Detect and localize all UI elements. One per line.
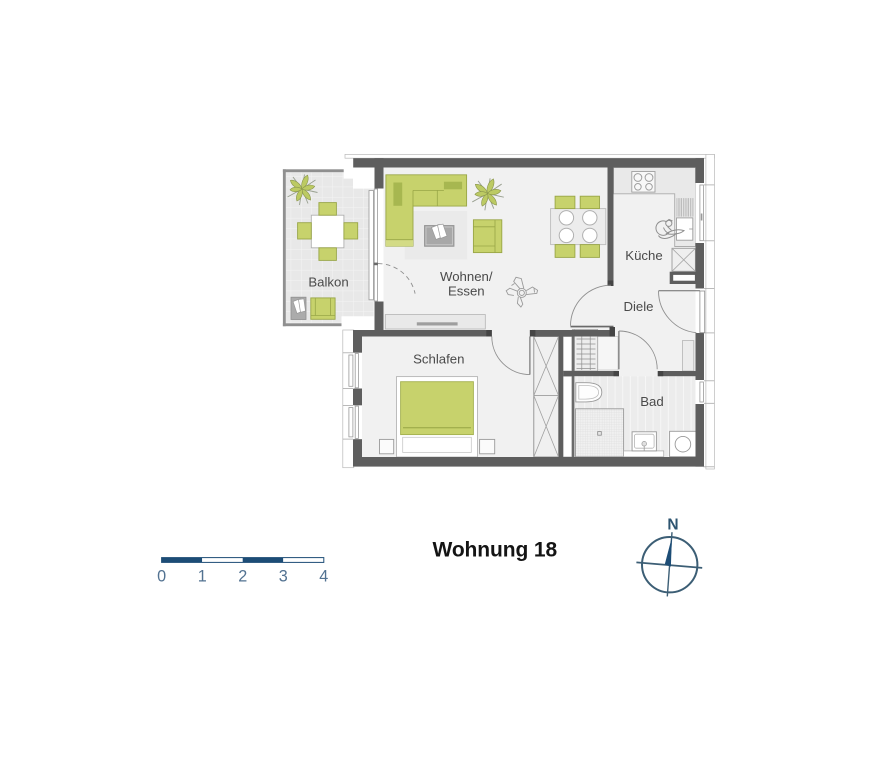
svg-text:2: 2 — [238, 568, 247, 586]
svg-text:Diele: Diele — [623, 299, 653, 314]
svg-text:Küche: Küche — [625, 248, 662, 263]
svg-text:Bad: Bad — [640, 394, 663, 409]
svg-text:Wohnen/: Wohnen/ — [440, 269, 493, 284]
svg-text:4: 4 — [319, 568, 328, 586]
svg-text:0: 0 — [157, 568, 166, 586]
svg-text:Schlafen: Schlafen — [413, 351, 464, 366]
svg-text:Essen: Essen — [448, 283, 485, 298]
svg-text:Wohnung 18: Wohnung 18 — [432, 538, 557, 561]
svg-text:3: 3 — [279, 568, 288, 586]
svg-text:1: 1 — [198, 568, 207, 586]
svg-text:N: N — [667, 516, 678, 533]
svg-text:Balkon: Balkon — [308, 275, 348, 290]
